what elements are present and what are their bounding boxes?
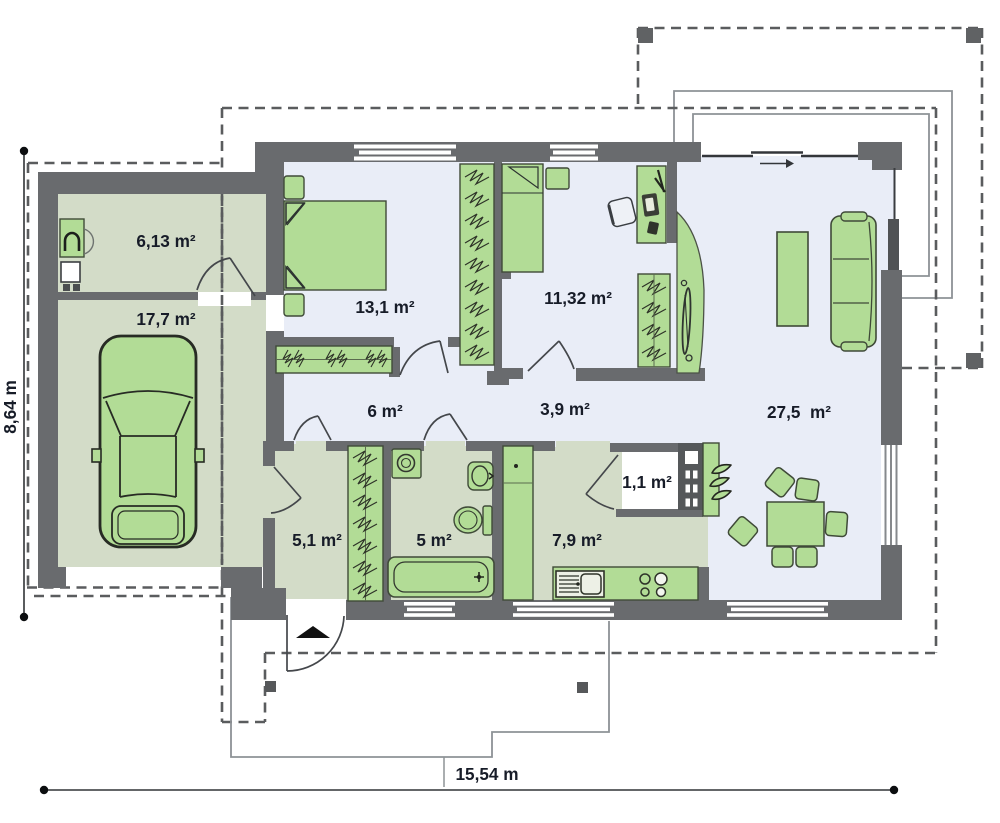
svg-text:5 m²: 5 m²: [416, 530, 452, 550]
svg-text:1,1 m²: 1,1 m²: [622, 472, 672, 492]
svg-text:3,9 m²: 3,9 m²: [540, 399, 590, 419]
svg-text:27,5 m²: 27,5 m²: [767, 402, 831, 422]
svg-text:6,13 m²: 6,13 m²: [136, 231, 196, 251]
svg-text:15,54 m: 15,54 m: [455, 764, 518, 784]
svg-text:7,9 m²: 7,9 m²: [552, 530, 602, 550]
svg-text:11,32 m²: 11,32 m²: [544, 288, 612, 308]
svg-text:6 m²: 6 m²: [367, 401, 403, 421]
svg-text:8,64 m: 8,64 m: [0, 380, 20, 434]
svg-text:13,1 m²: 13,1 m²: [355, 297, 415, 317]
svg-text:17,7 m²: 17,7 m²: [136, 309, 196, 329]
svg-text:5,1 m²: 5,1 m²: [292, 530, 342, 550]
